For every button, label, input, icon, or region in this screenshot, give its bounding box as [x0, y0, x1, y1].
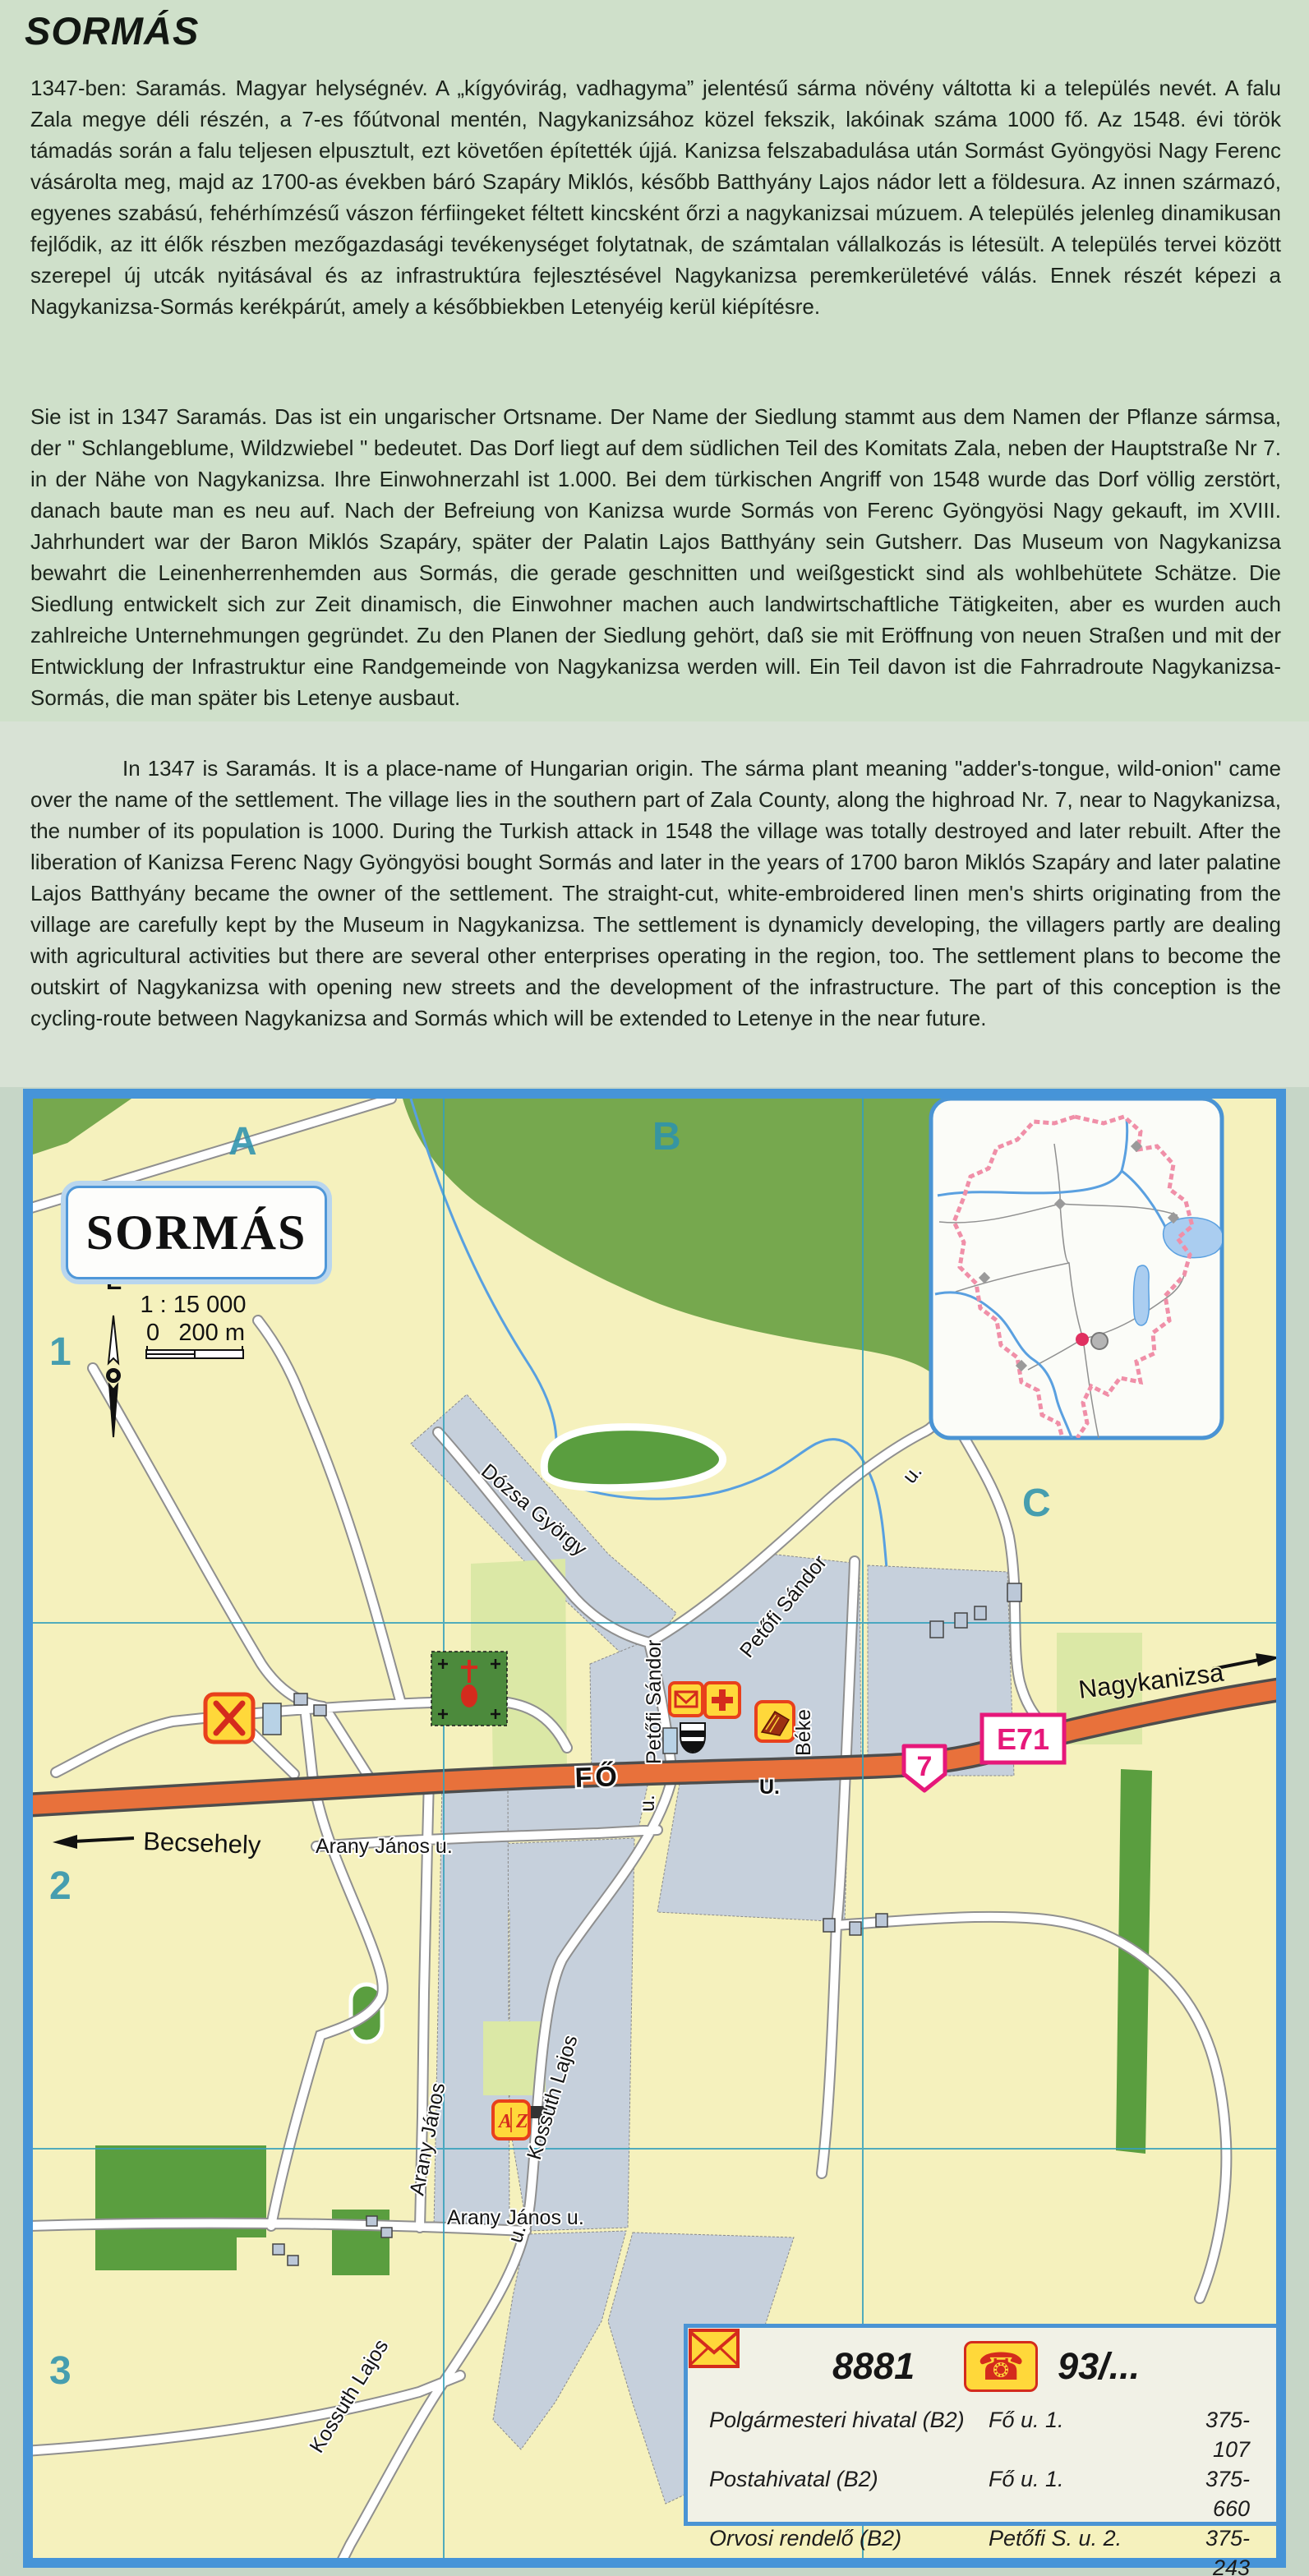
scale-ratio: 1 : 15 000	[141, 1292, 247, 1318]
legend-box: 8881 ☎ 93/... Polgármesteri hivatal (B2)…	[684, 2324, 1280, 2526]
town-hall-shield-icon	[680, 1723, 705, 1753]
grid-row-3: 3	[49, 2349, 71, 2393]
road-shield-e71: E71	[982, 1715, 1064, 1763]
library-icon	[756, 1702, 794, 1741]
grid-col-c: C	[1022, 1482, 1051, 1525]
street-petofi-vertical: Petőfi Sándor	[643, 1640, 666, 1765]
street-fo-u: U.	[759, 1776, 780, 1799]
restaurant-icon	[205, 1694, 253, 1742]
street-petofi-vertical-u: u.	[636, 1795, 659, 1812]
grid-row-1: 1	[49, 1330, 71, 1374]
direction-becsehely: Becsehely	[143, 1827, 262, 1859]
street-arany-janos-1: Arany János u.	[316, 1835, 453, 1858]
scale-zero: 0	[146, 1320, 159, 1346]
postal-code: 8881	[832, 2345, 915, 2388]
place-name: Orvosi rendelő (B2)	[709, 2523, 989, 2576]
place-address: Fő u. 1.	[989, 2464, 1186, 2523]
inset-sormas-dot	[1076, 1333, 1089, 1346]
map-title-box: SORMÁS	[66, 1186, 327, 1279]
grid-col-b: B	[652, 1115, 681, 1159]
inset-small-lake	[1134, 1265, 1150, 1325]
legend-row: Polgármesteri hivatal (B2) Fő u. 1. 375-…	[709, 2405, 1255, 2464]
svg-text:7: 7	[917, 1751, 933, 1782]
medical-icon	[705, 1683, 740, 1717]
street-fo: FŐ	[574, 1761, 621, 1794]
grid-col-a: A	[228, 1120, 257, 1164]
inset-city-marker	[1091, 1333, 1108, 1349]
page-title: SORMÁS	[25, 8, 199, 53]
grid-row-2: 2	[49, 1864, 71, 1908]
street-beke: Béke	[792, 1709, 815, 1756]
paragraph-english: In 1347 is Saramás. It is a place-name o…	[30, 753, 1281, 1034]
place-address: Fő u. 1.	[989, 2405, 1186, 2464]
paragraph-hungarian: 1347-ben: Saramás. Magyar helységnév. A …	[30, 72, 1281, 322]
place-address: Petőfi S. u. 2.	[989, 2523, 1186, 2576]
legend-rows: Polgármesteri hivatal (B2) Fő u. 1. 375-…	[709, 2405, 1255, 2576]
svg-text:E71: E71	[997, 1722, 1049, 1756]
place-phone: 375-243	[1186, 2523, 1255, 2576]
place-phone: 375-107	[1186, 2405, 1255, 2464]
phone-prefix: 93/...	[1058, 2345, 1140, 2388]
paragraph-german: Sie ist in 1347 Saramás. Das ist ein ung…	[30, 401, 1281, 713]
cemetery-icon	[431, 1652, 507, 1726]
place-phone: 375-660	[1186, 2464, 1255, 2523]
town-map: AZ 7 E71	[23, 1089, 1286, 2568]
legend-row: Postahivatal (B2) Fő u. 1. 375-660	[709, 2464, 1255, 2523]
scanned-page: SORMÁS 1347-ben: Saramás. Magyar helység…	[0, 0, 1309, 2576]
school-icon: AZ	[493, 2101, 532, 2139]
telephone-icon: ☎	[964, 2341, 1038, 2392]
envelope-icon	[688, 2328, 740, 2369]
school-icon-letters: AZ	[497, 2111, 532, 2132]
legend-header: 8881 ☎ 93/...	[709, 2341, 1255, 2392]
legend-row: Orvosi rendelő (B2) Petőfi S. u. 2. 375-…	[709, 2523, 1255, 2576]
post-office-icon	[670, 1683, 703, 1716]
pond	[544, 1427, 722, 1488]
place-name: Postahivatal (B2)	[709, 2464, 989, 2523]
place-name: Polgármesteri hivatal (B2)	[709, 2405, 989, 2464]
map-title: SORMÁS	[86, 1205, 307, 1261]
scale-end: 200 m	[178, 1320, 245, 1346]
inset-region-map	[931, 1099, 1224, 1442]
